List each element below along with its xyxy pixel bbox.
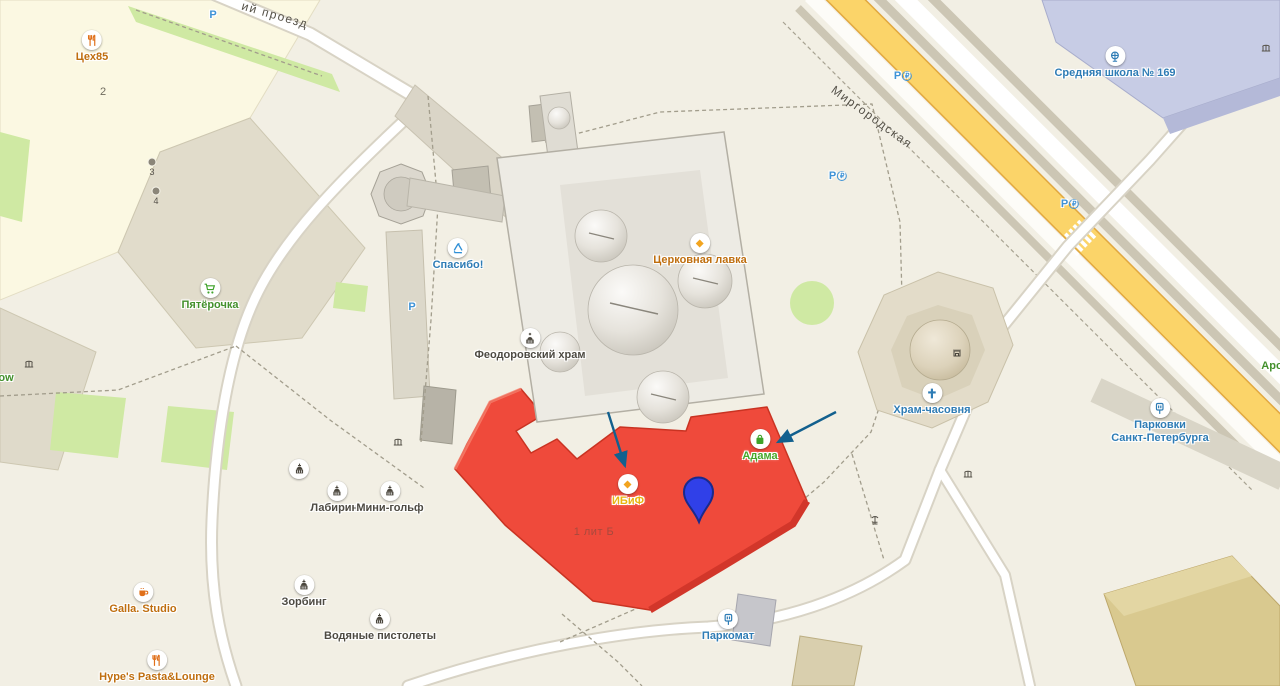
poi-ibif[interactable]: ИБиФ — [612, 474, 644, 507]
attraction-icon — [293, 463, 306, 476]
cross-icon — [925, 387, 938, 400]
restaurant-icon — [150, 654, 163, 667]
poi-label: Спасибо! — [433, 259, 484, 271]
poi-label: Цех85 — [76, 51, 109, 63]
poi-label: Мини-гольф — [356, 502, 423, 514]
poi-label: Водяные пистолеты — [324, 630, 436, 642]
poi-vodyanye-pistolety[interactable]: Водяные пистолеты — [324, 609, 436, 642]
poi-parkovki-spb[interactable]: Парковки Санкт-Петербурга — [1111, 398, 1209, 444]
restaurant-icon — [86, 34, 99, 47]
parking-meter-icon — [1153, 402, 1166, 415]
poi-hram-chasovnya[interactable]: Храм-часовня — [893, 383, 970, 416]
shopping-cart-icon — [203, 282, 216, 295]
partial-label-right: Аро — [1261, 360, 1280, 372]
poi-label: Galla. Studio — [109, 603, 176, 615]
poi-galla-studio[interactable]: Galla. Studio — [109, 582, 176, 615]
poi-label: Адама — [742, 450, 777, 462]
tower-icon — [951, 346, 963, 358]
building-liter-label: 1 лит Б — [574, 526, 615, 538]
building-number: 2 — [100, 86, 106, 98]
entrance-number: 4 — [153, 196, 158, 206]
globe-icon — [1108, 50, 1121, 63]
entrance-dot — [152, 187, 161, 196]
poi-label: Hype's Pasta&Lounge — [99, 671, 215, 683]
attraction-icon — [373, 613, 386, 626]
paid-parking-road-icon[interactable]: P₽ — [829, 170, 847, 182]
poi-attraction[interactable] — [289, 459, 309, 479]
fountain-icon — [869, 514, 881, 526]
poi-label: Средняя школа № 169 — [1054, 67, 1175, 79]
attraction-icon — [383, 485, 396, 498]
gate-icon — [1260, 42, 1272, 54]
church-icon — [523, 332, 536, 345]
parking-meter-icon — [722, 613, 735, 626]
poi-label: Пятёрочка — [181, 299, 238, 311]
poi-label: Храм-часовня — [893, 404, 970, 416]
street-label-mirgorodskaya: Миргородская — [829, 83, 916, 151]
poi-label: Парковки — [1134, 419, 1186, 431]
partial-label-left: ow — [0, 372, 14, 384]
entrance-number: 3 — [149, 167, 154, 177]
gate-icon — [962, 468, 974, 480]
parking-road-icon[interactable]: P — [209, 9, 216, 21]
attraction-icon — [331, 485, 344, 498]
poi-parkomat[interactable]: Паркомат — [702, 609, 754, 642]
street-label-proezd: ий проезд — [240, 0, 310, 31]
poi-label: ИБиФ — [612, 495, 644, 507]
diamond-icon — [693, 237, 706, 250]
cafe-icon — [136, 586, 149, 599]
poi-label: Феодоровский храм — [474, 349, 585, 361]
poi-adama[interactable]: Адама — [742, 429, 777, 462]
paid-parking-road-icon[interactable]: P₽ — [1061, 198, 1079, 210]
parking-road-icon[interactable]: P — [408, 301, 415, 313]
poi-label: Санкт-Петербурга — [1111, 432, 1209, 444]
poi-hype-pasta-lounge[interactable]: Hype's Pasta&Lounge — [99, 650, 215, 683]
attraction-icon — [298, 579, 311, 592]
shopping-bag-icon — [754, 433, 767, 446]
map-viewport[interactable]: ий проезд Миргородская 2 3 4 1 лит Б ow … — [0, 0, 1280, 686]
poi-tserkovnaya-lavka[interactable]: Церковная лавка — [653, 233, 747, 266]
gate-icon — [23, 358, 35, 370]
paid-parking-road-icon[interactable]: P₽ — [894, 70, 912, 82]
diamond-icon — [622, 478, 635, 491]
poi-label: Зорбинг — [281, 596, 326, 608]
poi-pyaterochka[interactable]: Пятёрочка — [181, 278, 238, 311]
poi-spasibo[interactable]: Спасибо! — [433, 238, 484, 271]
poi-zorbing[interactable]: Зорбинг — [281, 575, 326, 608]
recycle-icon — [451, 242, 464, 255]
gate-icon — [392, 436, 404, 448]
poi-label: Церковная лавка — [653, 254, 747, 266]
poi-tseh85[interactable]: Цех85 — [76, 30, 109, 63]
poi-label: Паркомат — [702, 630, 754, 642]
poi-minigolf[interactable]: Мини-гольф — [356, 481, 423, 514]
labels-overlay: ий проезд Миргородская 2 3 4 1 лит Б ow … — [0, 0, 1280, 686]
poi-school-169[interactable]: Средняя школа № 169 — [1054, 46, 1175, 79]
poi-feodorovsky-hram[interactable]: Феодоровский храм — [474, 328, 585, 361]
entrance-dot — [148, 158, 157, 167]
